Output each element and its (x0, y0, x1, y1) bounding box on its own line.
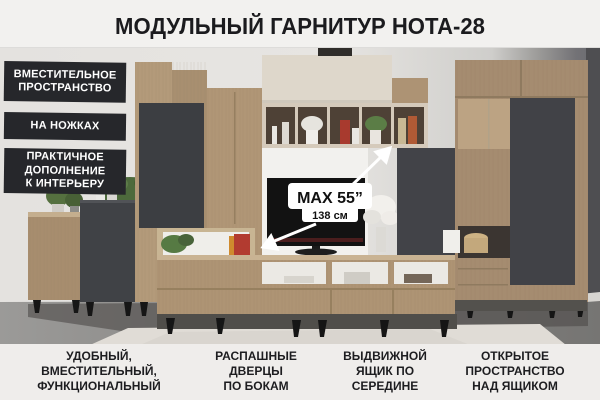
svg-text:138 см: 138 см (312, 210, 348, 222)
svg-text:MAX 55”: MAX 55” (297, 190, 363, 207)
